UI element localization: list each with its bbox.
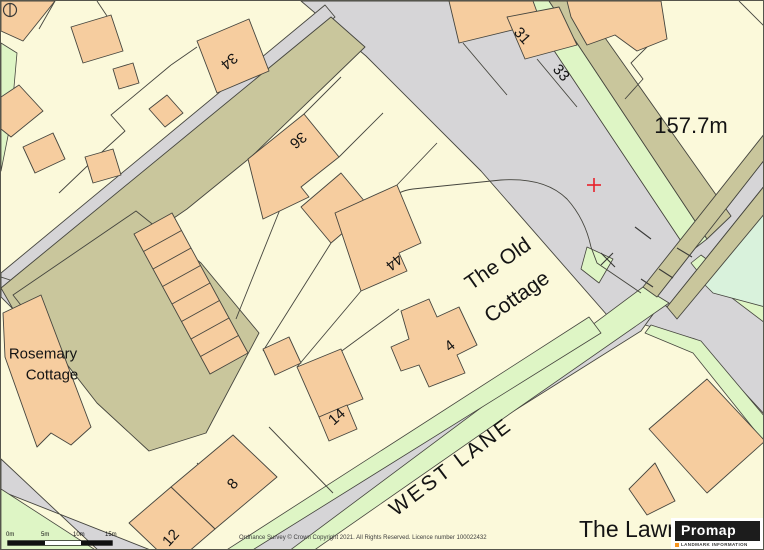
scale-tick-15: 15m xyxy=(105,532,117,538)
building-4-old-cottage xyxy=(391,299,477,387)
scale-tick-0: 0m xyxy=(6,532,14,538)
map-viewport[interactable]: 34 36 44 31 33 4 14 8 12 157.7m The Old … xyxy=(0,0,764,550)
rosemary-label-line1: Rosemary xyxy=(9,347,77,362)
building-left-edge xyxy=(1,85,43,137)
map-canvas xyxy=(1,1,764,550)
scale-tick-5: 5m xyxy=(41,532,49,538)
copyright-attribution: Ordnance Survey © Crown Copyright 2021. … xyxy=(239,535,487,541)
building-sq1 xyxy=(113,63,139,89)
building-14 xyxy=(297,349,363,417)
landmark-dot-icon xyxy=(675,543,679,547)
scale-segment xyxy=(8,541,45,545)
the-lawns-label: The Lawn xyxy=(579,518,680,541)
building-lawns-annex xyxy=(629,463,675,515)
scale-bar xyxy=(8,541,112,545)
scale-tick-10: 10m xyxy=(73,532,85,538)
scale-segment xyxy=(45,541,81,545)
spot-height-label: 157.7m xyxy=(654,115,727,137)
building-diamond xyxy=(149,95,183,127)
scale-segment xyxy=(81,541,112,545)
building-small2 xyxy=(23,133,65,173)
rosemary-label-line2: Cottage xyxy=(26,368,79,383)
promap-brand: Promap xyxy=(675,521,760,541)
landmark-tagline: LANDMARK INFORMATION xyxy=(681,542,748,547)
promap-logo: Promap LANDMARK INFORMATION xyxy=(671,518,763,549)
building-a xyxy=(71,15,123,63)
building-corner xyxy=(1,1,55,41)
